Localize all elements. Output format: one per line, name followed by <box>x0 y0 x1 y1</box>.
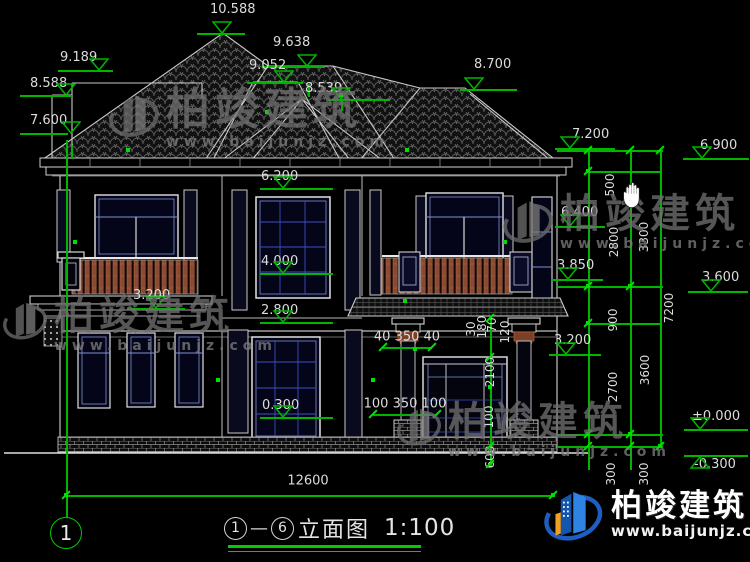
elevation-triangle-icon <box>560 214 580 227</box>
grip-dot <box>658 444 662 448</box>
grip-dot <box>586 432 590 436</box>
grip-dot <box>488 385 492 389</box>
elevation-label: 8.700 <box>474 58 511 71</box>
grip-dot <box>586 321 590 325</box>
hand-cursor-icon <box>620 177 648 209</box>
elevation-level-line <box>260 322 333 324</box>
dim-text-rotated: 120 <box>499 321 511 344</box>
grip-dot <box>503 240 507 244</box>
elevation-triangle-icon <box>273 261 293 274</box>
elevation-triangle-icon <box>61 121 81 134</box>
grip-dot <box>339 93 343 97</box>
axis-bubble-1: 1 <box>50 517 82 549</box>
elevation-triangle-icon <box>558 267 578 280</box>
elevation-triangle-icon <box>273 176 293 189</box>
title-dash: — <box>250 518 268 539</box>
dim-line-vertical <box>66 140 68 517</box>
grip-dot <box>265 110 269 114</box>
dim-text-rotated: 500 <box>604 174 616 197</box>
dim-text-rotated: 900 <box>607 309 619 332</box>
elevation-level-line <box>260 417 333 419</box>
dim-text: 40 350 40 <box>374 331 440 344</box>
dimension-layer: 10.5889.6389.0528.5399.1898.5887.6008.70… <box>0 0 750 562</box>
title-underline-thin <box>228 551 421 552</box>
cad-canvas: 10.5889.6389.0528.5399.1898.5887.6008.70… <box>0 0 750 562</box>
dim-line-horizontal <box>383 347 432 349</box>
grip-dot <box>403 299 407 303</box>
elevation-triangle-icon <box>89 58 109 71</box>
dim-line-horizontal <box>66 495 553 497</box>
brand-logo: 柏竣建筑 www.baijunjz.com <box>543 482 750 548</box>
dim-line-horizontal <box>557 150 663 152</box>
elevation-label: 9.638 <box>273 36 310 49</box>
elevation-triangle-icon <box>274 70 294 83</box>
grip-dot <box>413 347 417 351</box>
drawing-title: 1 — 6 立面图 1:100 <box>224 512 455 544</box>
dim-text-rotated: 7200 <box>663 293 675 324</box>
dim-text: 12600 <box>287 475 328 488</box>
elevation-triangle-icon <box>273 405 293 418</box>
dim-text-rotated: 2700 <box>607 372 619 403</box>
dim-line-horizontal <box>557 434 663 436</box>
brand-name: 柏竣建筑 <box>611 490 750 523</box>
elevation-triangle-icon <box>273 310 293 323</box>
grip-dot <box>126 148 130 152</box>
grip-dot <box>628 284 632 288</box>
axis-start-bubble: 1 <box>224 517 247 540</box>
dim-text-rotated: 100 <box>483 406 495 429</box>
dim-line-horizontal <box>373 414 437 416</box>
brand-logo-icon <box>543 482 607 548</box>
elevation-triangle-icon <box>692 146 712 159</box>
elevation-label: 10.588 <box>210 3 256 16</box>
dim-line-vertical <box>71 145 73 159</box>
elevation-level-line <box>260 188 333 190</box>
title-name: 立面图 <box>298 512 370 544</box>
dim-text-rotated: 3600 <box>639 355 651 386</box>
elevation-triangle-icon <box>556 342 576 355</box>
elevation-triangle-icon <box>297 54 317 67</box>
dim-line-horizontal <box>588 171 662 173</box>
elevation-triangle-icon <box>146 296 166 309</box>
dim-text-rotated: 2800 <box>608 227 620 258</box>
axis-end-bubble: 6 <box>271 517 294 540</box>
grip-dot <box>586 284 590 288</box>
dim-line-horizontal <box>557 446 663 448</box>
dim-line-vertical <box>588 150 590 470</box>
grip-dot <box>586 169 590 173</box>
grip-dot <box>216 378 220 382</box>
dim-line-vertical <box>341 99 343 111</box>
grip-dot <box>64 493 68 497</box>
dim-text-rotated: 3300 <box>638 222 650 253</box>
elevation-triangle-icon <box>701 279 721 292</box>
dim-line-horizontal <box>588 323 662 325</box>
elevation-triangle-icon <box>464 77 484 90</box>
elevation-triangle-icon <box>690 417 710 430</box>
grip-dot <box>628 432 632 436</box>
elevation-triangle-icon <box>56 83 76 96</box>
dim-line-horizontal <box>557 286 663 288</box>
title-underline <box>228 545 421 548</box>
brand-site: www.baijunjz.com <box>611 522 750 540</box>
grip-dot <box>371 378 375 382</box>
grip-dot <box>73 240 77 244</box>
title-scale: 1:100 <box>384 515 455 541</box>
elevation-triangle-icon <box>690 456 710 469</box>
elevation-triangle-icon <box>560 136 580 149</box>
elevation-triangle-icon <box>212 21 232 34</box>
axis-bubble-label: 1 <box>60 521 73 545</box>
grip-dot <box>405 148 409 152</box>
elevation-level-line <box>260 273 333 275</box>
